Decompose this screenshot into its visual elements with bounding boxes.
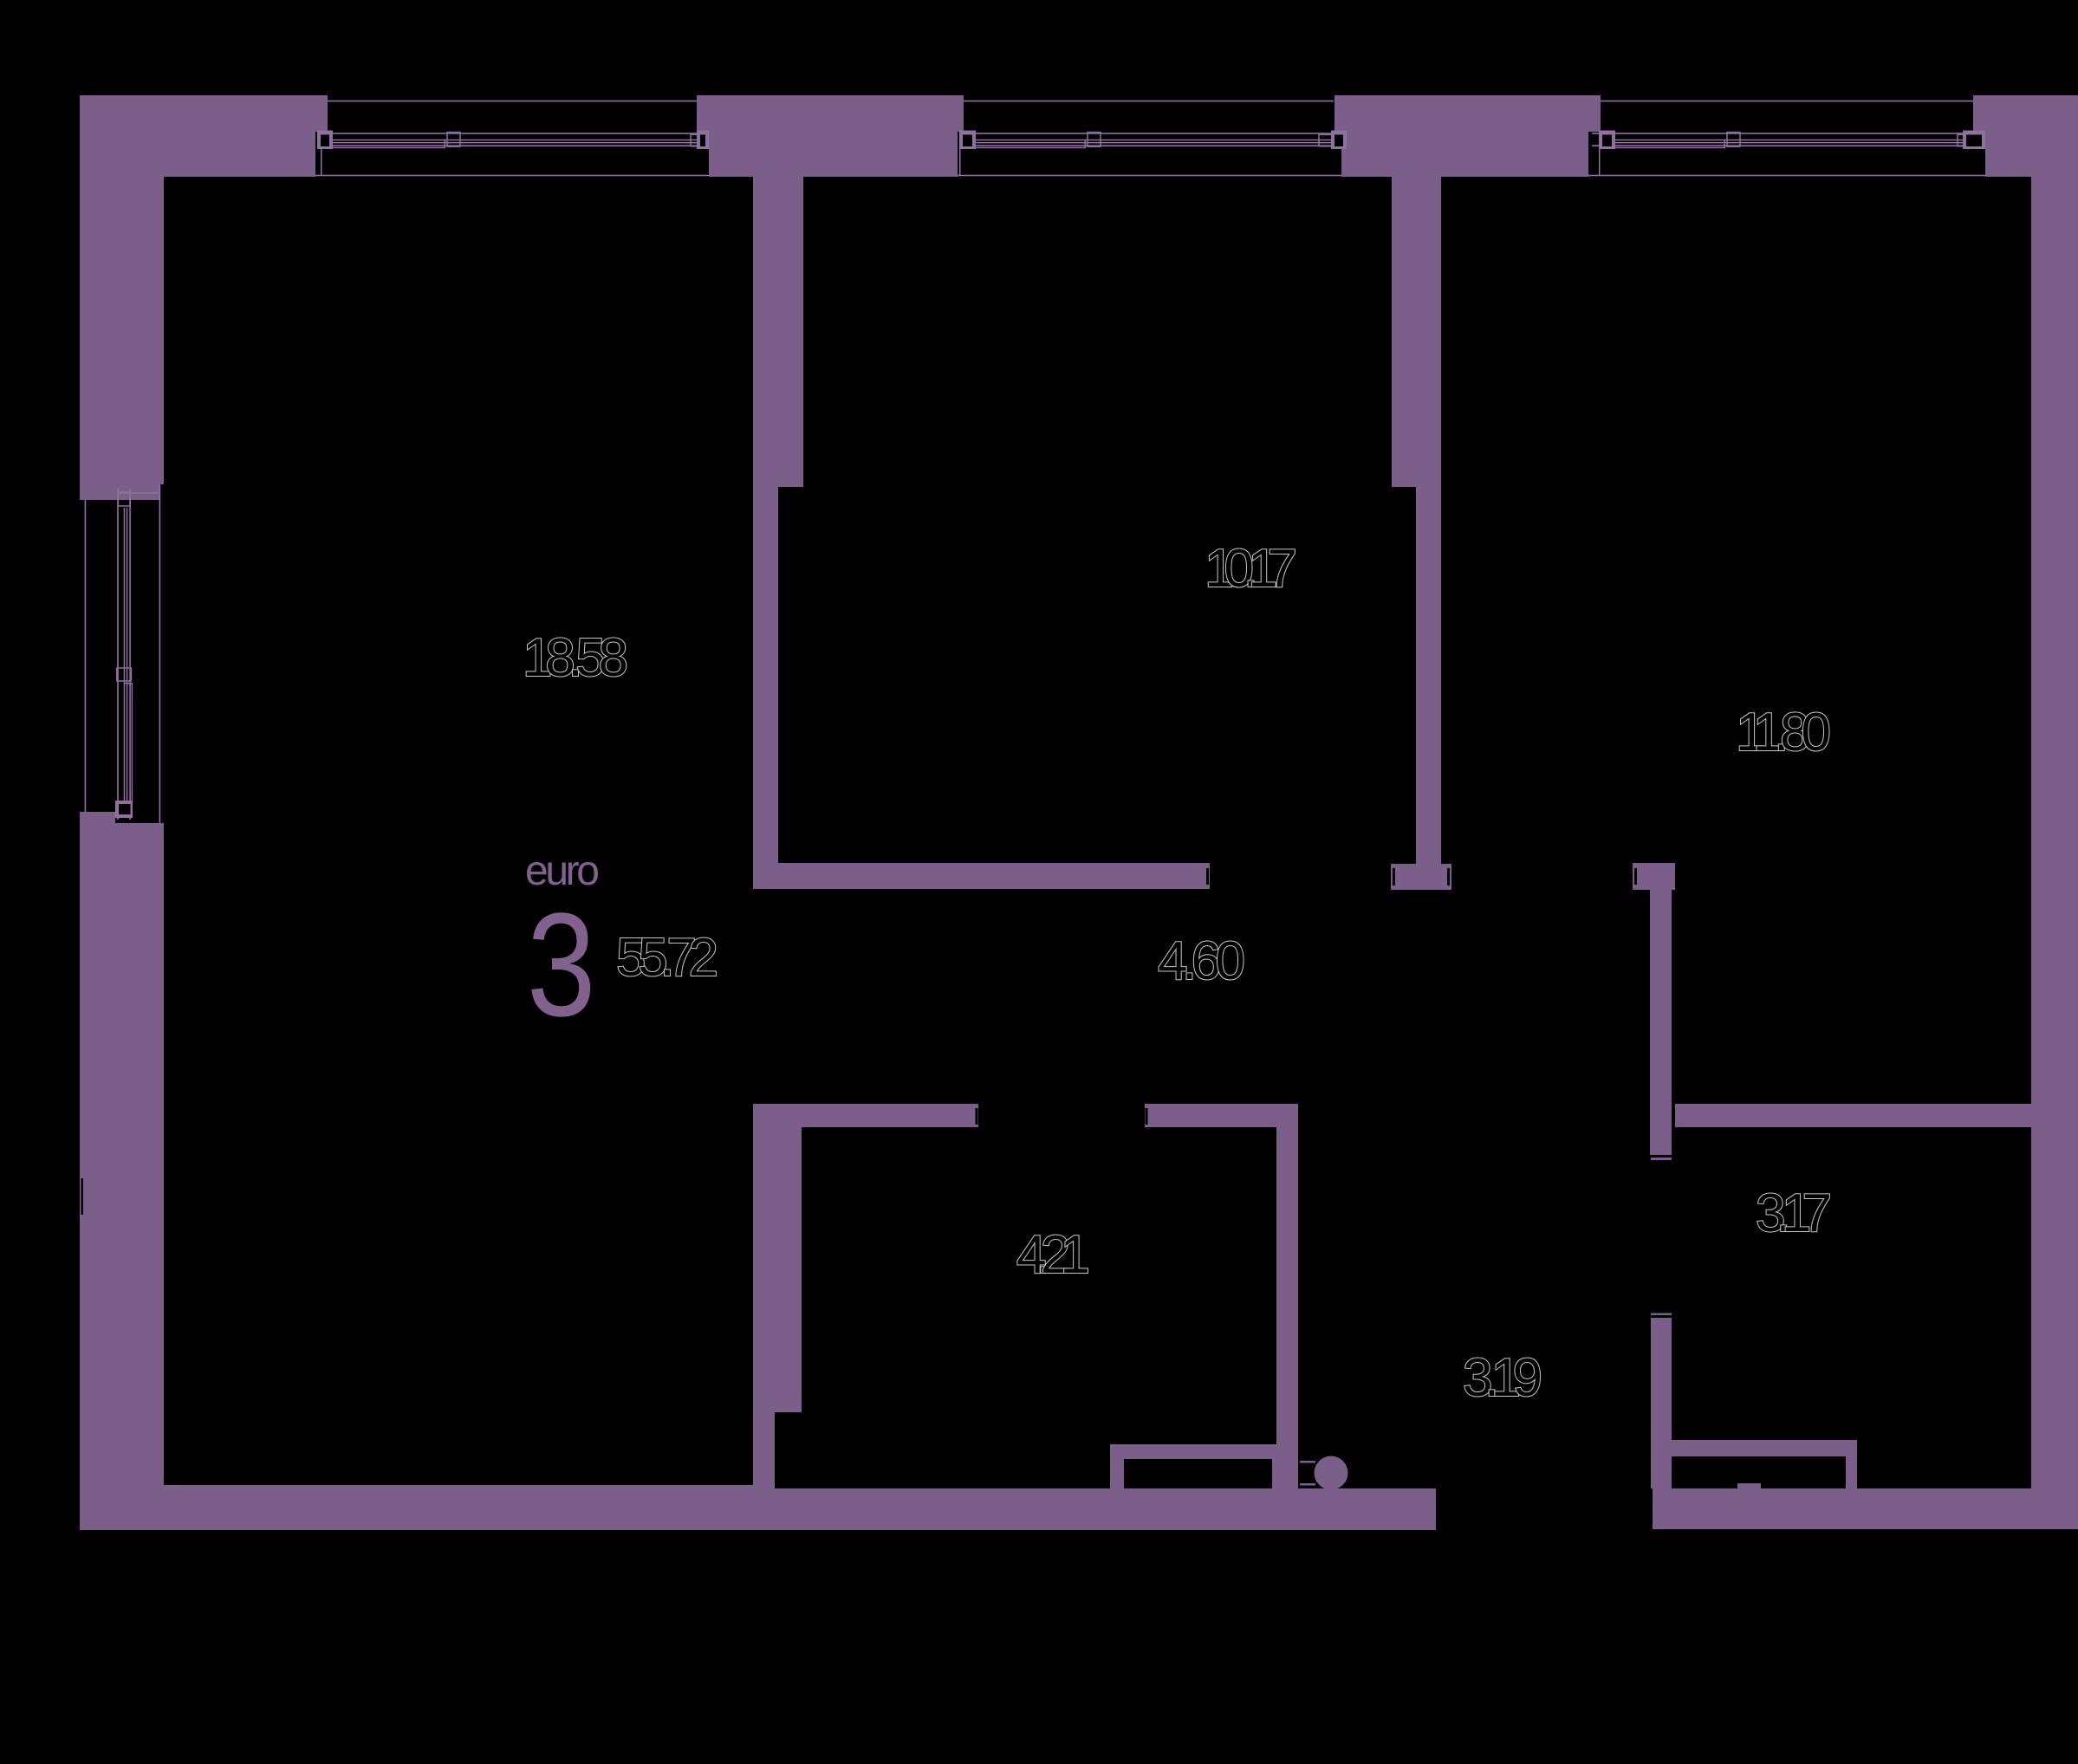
svg-text:4.21: 4.21 <box>1016 1225 1090 1285</box>
svg-text:3: 3 <box>527 883 595 1047</box>
svg-text:10.17: 10.17 <box>1205 539 1297 599</box>
svg-text:4.60: 4.60 <box>1158 931 1245 991</box>
svg-text:3.19: 3.19 <box>1463 1348 1542 1408</box>
svg-text:18.58: 18.58 <box>523 628 628 688</box>
svg-text:55.72: 55.72 <box>616 928 718 988</box>
svg-text:3.17: 3.17 <box>1756 1184 1832 1243</box>
svg-text:11.80: 11.80 <box>1736 703 1831 762</box>
